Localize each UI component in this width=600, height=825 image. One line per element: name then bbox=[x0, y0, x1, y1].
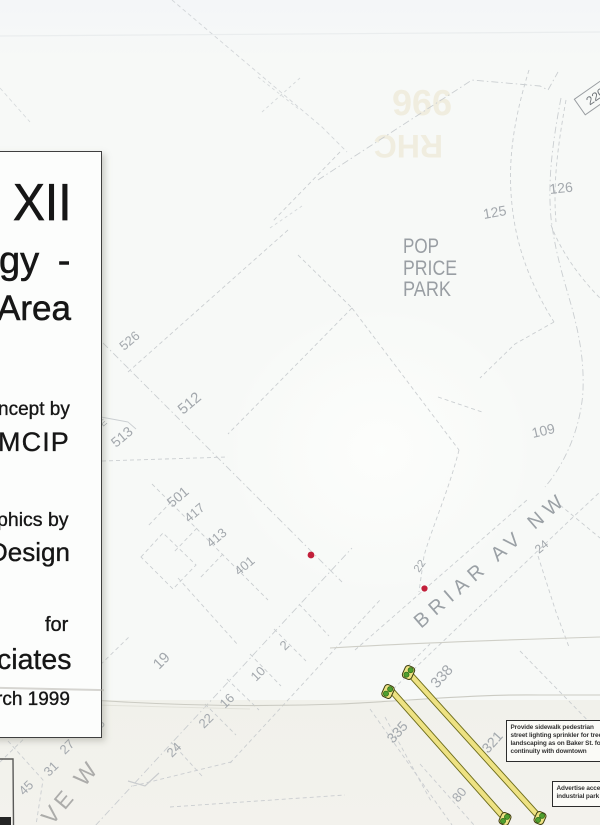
svg-text:512: 512 bbox=[175, 389, 205, 418]
svg-text:335: 335 bbox=[383, 718, 411, 746]
svg-text:513: 513 bbox=[108, 423, 136, 450]
svg-text:24: 24 bbox=[164, 739, 185, 760]
svg-text:BRIAR AV NW: BRIAR AV NW bbox=[410, 491, 568, 632]
svg-text:22: 22 bbox=[412, 558, 429, 575]
svg-text:PRICE: PRICE bbox=[403, 257, 457, 280]
svg-text:27: 27 bbox=[57, 736, 78, 757]
svg-text:POP: POP bbox=[403, 235, 439, 258]
svg-text:501: 501 bbox=[164, 483, 192, 510]
svg-text:RHC: RHC bbox=[374, 128, 443, 164]
svg-text:45: 45 bbox=[16, 777, 37, 798]
svg-text:10: 10 bbox=[248, 663, 269, 684]
svg-text:22: 22 bbox=[196, 710, 217, 731]
svg-text:31: 31 bbox=[41, 758, 62, 779]
svg-text:19: 19 bbox=[150, 649, 174, 673]
svg-text:401: 401 bbox=[231, 553, 257, 578]
svg-text:996: 996 bbox=[392, 82, 452, 123]
svg-text:526: 526 bbox=[116, 328, 142, 353]
svg-text:126: 126 bbox=[549, 179, 574, 197]
svg-text:109: 109 bbox=[530, 420, 557, 441]
svg-text:338: 338 bbox=[427, 662, 456, 692]
svg-text:417: 417 bbox=[181, 500, 207, 525]
svg-text:413: 413 bbox=[203, 525, 229, 550]
svg-text:220: 220 bbox=[583, 85, 600, 108]
svg-text:80: 80 bbox=[449, 784, 470, 805]
svg-text:125: 125 bbox=[482, 202, 508, 222]
svg-text:PARK: PARK bbox=[403, 278, 451, 301]
